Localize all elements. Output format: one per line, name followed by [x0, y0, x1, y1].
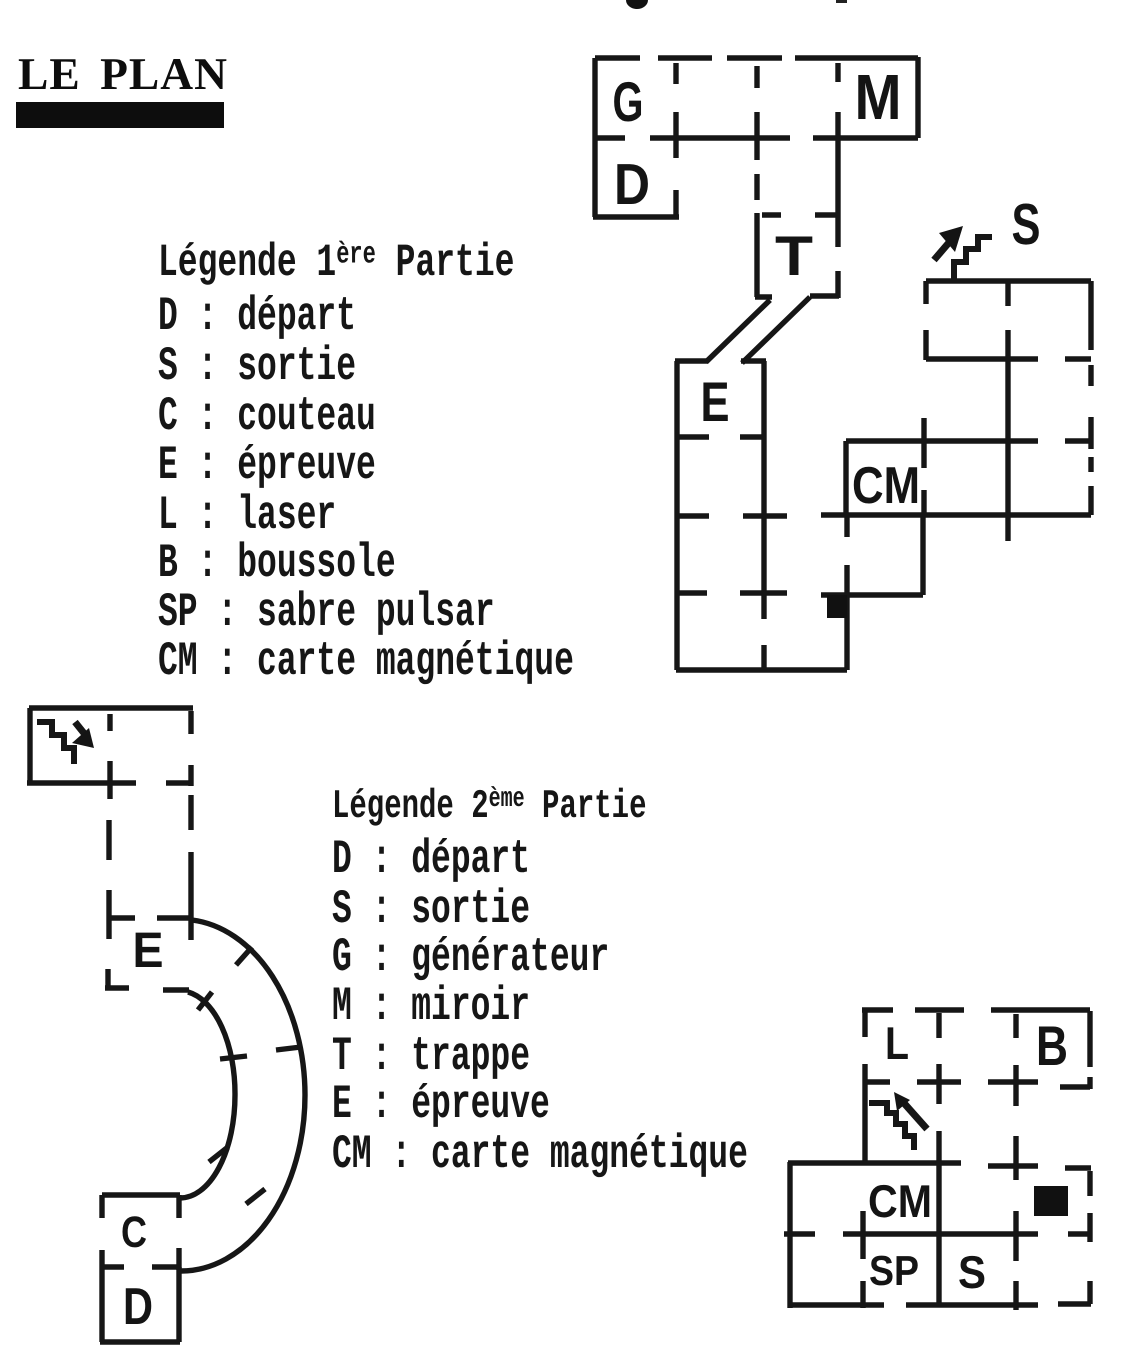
svg-text:Légende 1ère Partie: Légende 1ère Partie	[158, 237, 514, 289]
svg-text:Légende 2ème Partie: Légende 2ème Partie	[332, 783, 646, 829]
svg-text:D: D	[614, 152, 650, 217]
svg-text:CM : carte magnétique: CM : carte magnétique	[332, 1128, 748, 1182]
svg-text:SP : sabre pulsar: SP : sabre pulsar	[158, 586, 495, 640]
svg-text:M : miroir: M : miroir	[332, 980, 530, 1034]
svg-text:CM : carte magnétique: CM : carte magnétique	[158, 635, 574, 689]
svg-text:E: E	[701, 370, 730, 433]
svg-text:T: T	[775, 224, 813, 287]
svg-text:M: M	[855, 61, 902, 133]
svg-text:C : couteau: C : couteau	[158, 390, 376, 444]
svg-text:LE PLAN: LE PLAN	[18, 48, 228, 99]
svg-text:B : boussole: B : boussole	[158, 537, 396, 591]
svg-text:E : épreuve: E : épreuve	[332, 1078, 550, 1132]
svg-text:S: S	[958, 1246, 986, 1298]
svg-text:S: S	[1012, 192, 1041, 257]
svg-text:G : générateur: G : générateur	[332, 931, 609, 985]
svg-text:D : départ: D : départ	[332, 833, 530, 887]
svg-text:CM: CM	[852, 457, 920, 515]
svg-text:D: D	[123, 1278, 153, 1336]
svg-text:L: L	[885, 1017, 909, 1069]
svg-text:CM: CM	[868, 1175, 932, 1227]
svg-text:SP: SP	[869, 1247, 919, 1294]
svg-text:S : sortie: S : sortie	[158, 340, 356, 394]
svg-text:E : épreuve: E : épreuve	[158, 439, 376, 493]
svg-text:G: G	[613, 70, 644, 133]
svg-text:D : départ: D : départ	[158, 290, 356, 344]
svg-text:C: C	[121, 1208, 147, 1257]
svg-text:L : laser: L : laser	[158, 489, 336, 543]
svg-text:T : trappe: T : trappe	[332, 1030, 530, 1084]
svg-text:S : sortie: S : sortie	[332, 883, 530, 937]
svg-text:B: B	[1036, 1014, 1068, 1077]
svg-text:E: E	[133, 922, 164, 978]
